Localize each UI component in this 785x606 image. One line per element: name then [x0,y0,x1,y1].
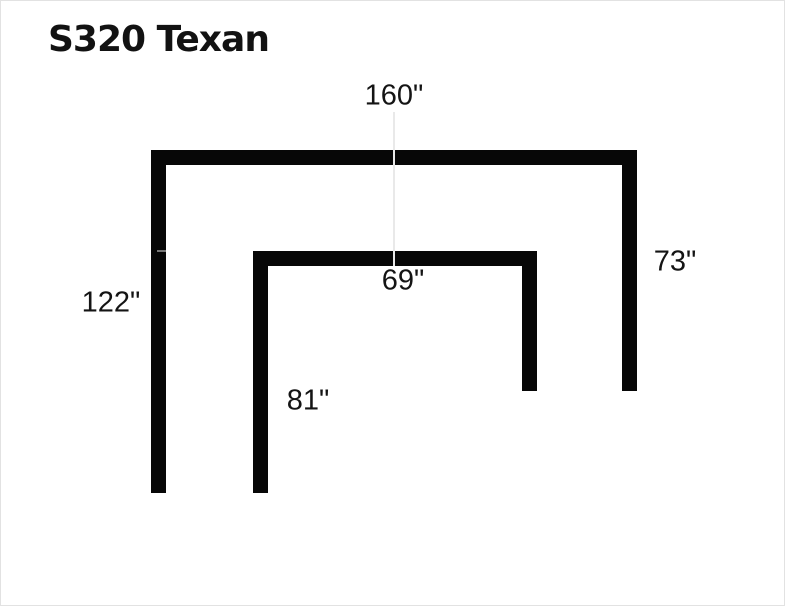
dimension-label-outer-width: 160" [365,80,424,113]
left-bar-tick-mark [157,250,166,252]
dimension-label-outer-left-depth: 122" [82,287,141,320]
diagram-canvas: S320 Texan 160" 69" 122" 73" 81" [0,0,785,606]
dimension-label-inner-left-depth: 81" [287,385,330,418]
center-dimension-guide-line [393,112,395,266]
dimension-label-inner-width: 69" [382,265,425,298]
inner-section-right-bar [522,251,537,391]
inner-section-left-bar [253,251,268,493]
page-title: S320 Texan [48,19,269,60]
outer-section-left-bar [151,150,166,493]
dimension-label-outer-right-depth: 73" [654,246,697,279]
outer-section-right-bar [622,150,637,391]
